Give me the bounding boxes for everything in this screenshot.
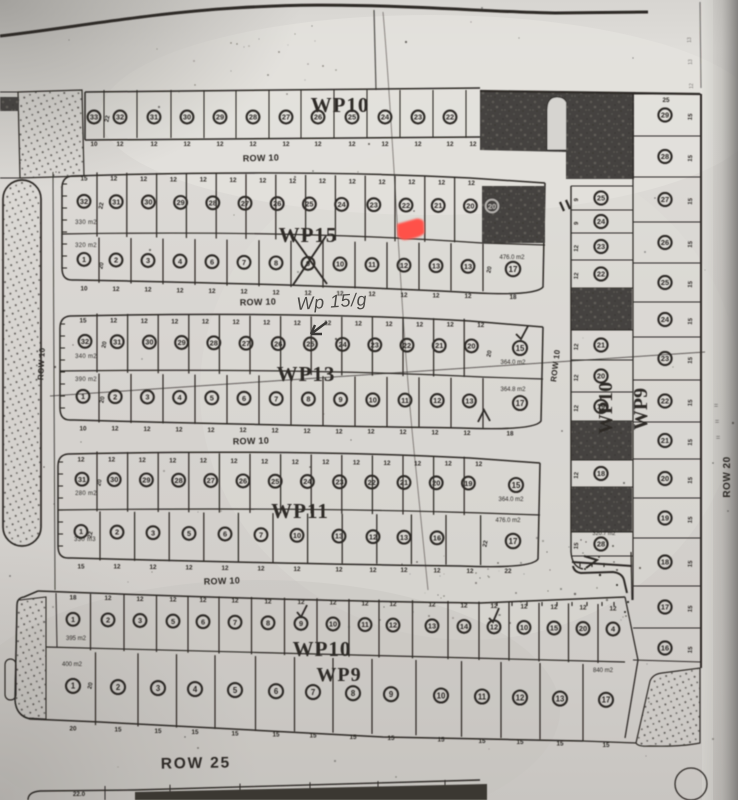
- svg-text:27: 27: [661, 195, 669, 204]
- svg-text:11: 11: [478, 692, 487, 701]
- svg-text:6: 6: [223, 530, 227, 539]
- svg-text:20: 20: [488, 202, 496, 211]
- svg-text:15: 15: [688, 516, 695, 524]
- svg-text:13: 13: [335, 532, 343, 541]
- svg-text:28: 28: [597, 540, 605, 549]
- svg-text:18: 18: [506, 430, 514, 437]
- svg-text:12: 12: [183, 141, 191, 148]
- svg-text:15: 15: [77, 563, 85, 570]
- svg-text:2: 2: [115, 528, 119, 537]
- svg-text:12: 12: [144, 287, 152, 294]
- svg-text:=: =: [714, 403, 718, 410]
- svg-text:21: 21: [400, 478, 408, 487]
- svg-text:33: 33: [90, 113, 98, 122]
- svg-text:6: 6: [274, 687, 279, 696]
- svg-text:=: =: [716, 435, 720, 442]
- svg-text:15: 15: [516, 739, 524, 746]
- svg-text:17: 17: [509, 265, 518, 274]
- svg-text:2: 2: [113, 392, 117, 401]
- svg-text:22.0: 22.0: [73, 791, 86, 798]
- svg-text:12: 12: [477, 322, 485, 329]
- svg-text:364.0 m2: 364.0 m2: [498, 497, 524, 503]
- svg-text:12: 12: [292, 459, 300, 466]
- svg-text:320 m2: 320 m2: [75, 243, 97, 249]
- svg-text:12: 12: [319, 178, 327, 185]
- svg-text:20: 20: [661, 474, 669, 483]
- svg-text:12: 12: [490, 623, 498, 632]
- svg-text:5: 5: [187, 529, 191, 538]
- svg-text:13: 13: [428, 621, 436, 630]
- svg-text:12: 12: [199, 597, 207, 604]
- svg-text:15: 15: [688, 197, 695, 205]
- svg-text:12: 12: [116, 141, 124, 148]
- svg-text:12: 12: [466, 568, 474, 575]
- svg-text:12: 12: [689, 83, 695, 89]
- svg-text:12: 12: [368, 291, 376, 298]
- svg-text:18: 18: [597, 469, 605, 478]
- svg-text:330 m2: 330 m2: [75, 220, 97, 226]
- svg-text:12: 12: [136, 596, 144, 603]
- svg-text:23: 23: [370, 200, 378, 209]
- svg-text:12: 12: [369, 567, 377, 574]
- svg-text:12: 12: [261, 458, 269, 465]
- svg-text:21: 21: [435, 341, 443, 350]
- svg-text:29: 29: [176, 198, 184, 207]
- svg-text:17: 17: [509, 537, 518, 546]
- svg-text:12: 12: [574, 272, 581, 280]
- svg-text:15: 15: [272, 732, 280, 739]
- svg-text:23: 23: [335, 478, 343, 487]
- svg-text:12: 12: [141, 318, 149, 325]
- svg-text:26: 26: [661, 238, 669, 247]
- svg-text:12: 12: [348, 141, 356, 148]
- svg-text:29: 29: [142, 476, 150, 485]
- svg-text:13: 13: [465, 397, 473, 406]
- svg-text:22: 22: [504, 568, 512, 575]
- svg-text:ROW 10: ROW 10: [243, 153, 280, 164]
- svg-text:20: 20: [597, 372, 605, 381]
- svg-text:12: 12: [574, 244, 581, 252]
- svg-text:30: 30: [145, 338, 153, 347]
- svg-text:12: 12: [335, 428, 343, 435]
- svg-text:12: 12: [468, 180, 476, 187]
- svg-text:29: 29: [661, 111, 669, 120]
- svg-text:12: 12: [169, 596, 177, 603]
- svg-text:15: 15: [478, 738, 486, 745]
- svg-text:12: 12: [149, 564, 157, 571]
- svg-text:15: 15: [688, 646, 695, 654]
- svg-text:12: 12: [139, 457, 147, 464]
- svg-text:12: 12: [216, 141, 224, 148]
- svg-text:3: 3: [156, 684, 161, 693]
- svg-text:12: 12: [385, 321, 393, 328]
- svg-text:12: 12: [110, 318, 118, 325]
- svg-text:15: 15: [154, 728, 162, 735]
- svg-text:15: 15: [688, 560, 695, 568]
- svg-text:12: 12: [432, 292, 440, 299]
- svg-text:WP9: WP9: [630, 388, 652, 430]
- svg-text:12: 12: [381, 141, 389, 148]
- svg-text:280 m2: 280 m2: [75, 491, 97, 497]
- svg-text:10: 10: [293, 531, 301, 540]
- svg-text:12: 12: [400, 261, 408, 270]
- svg-text:10: 10: [520, 623, 528, 632]
- svg-text:32: 32: [81, 337, 89, 346]
- svg-text:12: 12: [240, 289, 248, 296]
- svg-text:12: 12: [433, 396, 441, 405]
- svg-text:12: 12: [221, 565, 229, 572]
- svg-text:2: 2: [106, 616, 110, 625]
- svg-text:320.7 m2: 320.7 m2: [593, 531, 616, 537]
- svg-text:18: 18: [661, 558, 669, 567]
- svg-text:1: 1: [82, 255, 86, 264]
- svg-text:4: 4: [193, 685, 198, 694]
- svg-text:24: 24: [338, 340, 347, 349]
- svg-text:12: 12: [150, 141, 158, 148]
- svg-text:22: 22: [661, 397, 669, 406]
- svg-text:16: 16: [433, 534, 441, 543]
- svg-text:27: 27: [242, 339, 250, 348]
- svg-text:17: 17: [602, 696, 611, 705]
- svg-text:12: 12: [207, 427, 215, 434]
- svg-text:25: 25: [306, 340, 314, 349]
- svg-text:21: 21: [661, 436, 669, 445]
- svg-text:27: 27: [282, 113, 290, 122]
- svg-text:13: 13: [432, 261, 440, 270]
- svg-text:12: 12: [257, 565, 265, 572]
- svg-text:10: 10: [329, 620, 337, 629]
- svg-text:13: 13: [556, 694, 565, 703]
- svg-text:13: 13: [464, 262, 472, 271]
- svg-text:24: 24: [303, 477, 312, 486]
- svg-text:8: 8: [274, 259, 278, 268]
- svg-text:15: 15: [191, 729, 199, 736]
- svg-text:7: 7: [274, 394, 278, 403]
- svg-text:20: 20: [432, 478, 440, 487]
- svg-text:12: 12: [208, 288, 216, 295]
- svg-text:24: 24: [597, 217, 606, 226]
- svg-text:22: 22: [597, 270, 605, 279]
- svg-text:12: 12: [229, 177, 237, 184]
- svg-text:12: 12: [77, 456, 85, 463]
- svg-text:12: 12: [389, 601, 397, 608]
- svg-text:23: 23: [597, 242, 605, 251]
- svg-text:21: 21: [434, 201, 442, 210]
- svg-text:15: 15: [688, 113, 695, 121]
- svg-text:30: 30: [144, 198, 152, 207]
- svg-text:6: 6: [210, 257, 214, 266]
- svg-text:15: 15: [688, 438, 695, 446]
- svg-text:30: 30: [183, 113, 191, 122]
- svg-text:31: 31: [113, 337, 121, 346]
- svg-text:15: 15: [688, 476, 695, 484]
- svg-text:WP10: WP10: [595, 382, 617, 434]
- svg-text:WP15: WP15: [279, 223, 338, 247]
- svg-text:15: 15: [688, 317, 695, 325]
- svg-text:15: 15: [512, 481, 521, 490]
- svg-text:12: 12: [408, 179, 416, 186]
- svg-text:31: 31: [150, 113, 158, 122]
- svg-text:476.0 m2: 476.0 m2: [495, 518, 521, 524]
- svg-text:6: 6: [201, 617, 205, 626]
- svg-text:15: 15: [80, 175, 88, 182]
- svg-text:12: 12: [574, 471, 581, 479]
- svg-text:27: 27: [241, 199, 249, 208]
- svg-text:12: 12: [389, 621, 397, 630]
- svg-text:12: 12: [289, 178, 297, 185]
- svg-text:2: 2: [116, 683, 121, 692]
- svg-text:WP11: WP11: [271, 499, 329, 523]
- svg-text:24: 24: [337, 200, 346, 209]
- svg-text:15: 15: [574, 542, 581, 550]
- svg-text:15: 15: [688, 399, 695, 407]
- svg-text:ROW 10: ROW 10: [240, 297, 277, 308]
- svg-text:15: 15: [550, 624, 558, 633]
- svg-text:12: 12: [329, 600, 337, 607]
- svg-text:22: 22: [446, 113, 454, 122]
- svg-text:26: 26: [274, 339, 282, 348]
- svg-text:29: 29: [216, 113, 224, 122]
- svg-text:31: 31: [78, 475, 86, 484]
- svg-text:12: 12: [140, 176, 148, 183]
- svg-text:24: 24: [381, 113, 390, 122]
- svg-text:15: 15: [556, 740, 564, 747]
- svg-text:23: 23: [371, 340, 379, 349]
- svg-text:12: 12: [355, 321, 363, 328]
- svg-text:7: 7: [242, 258, 246, 267]
- svg-text:12: 12: [314, 141, 322, 148]
- svg-text:3: 3: [145, 393, 149, 402]
- svg-text:15: 15: [688, 605, 695, 613]
- svg-text:15: 15: [114, 727, 122, 734]
- svg-text:12: 12: [378, 179, 386, 186]
- svg-text:12: 12: [200, 458, 208, 465]
- svg-text:12: 12: [263, 319, 271, 326]
- svg-text:ROW 10: ROW 10: [36, 347, 47, 380]
- svg-text:22: 22: [368, 478, 376, 487]
- svg-text:12: 12: [475, 461, 483, 468]
- svg-text:390 m2: 390 m2: [75, 377, 97, 383]
- svg-text:12: 12: [433, 568, 441, 575]
- svg-text:12: 12: [171, 318, 179, 325]
- svg-text:12: 12: [574, 374, 581, 382]
- svg-text:12: 12: [446, 141, 454, 148]
- svg-text:364.8 m2: 364.8 m2: [500, 387, 526, 393]
- svg-text:5: 5: [210, 394, 214, 403]
- svg-text:12: 12: [579, 605, 587, 612]
- svg-text:28: 28: [210, 339, 218, 348]
- svg-text:WP10: WP10: [293, 637, 352, 661]
- svg-text:12: 12: [431, 430, 439, 437]
- svg-text:20: 20: [467, 342, 475, 351]
- svg-text:10: 10: [336, 260, 344, 269]
- svg-text:12: 12: [460, 602, 468, 609]
- svg-text:2: 2: [114, 256, 118, 265]
- svg-text:12: 12: [185, 565, 193, 572]
- svg-text:15: 15: [688, 154, 695, 162]
- svg-text:1: 1: [79, 527, 83, 536]
- svg-text:15: 15: [387, 735, 395, 742]
- svg-text:25: 25: [661, 278, 669, 287]
- svg-text:7: 7: [233, 618, 237, 627]
- svg-text:10: 10: [437, 691, 446, 700]
- svg-text:10: 10: [90, 141, 98, 148]
- svg-text:17: 17: [516, 399, 525, 408]
- svg-text:12: 12: [399, 429, 407, 436]
- svg-text:=: =: [715, 419, 719, 426]
- svg-text:12: 12: [574, 404, 581, 412]
- svg-text:5: 5: [171, 617, 175, 626]
- svg-text:3: 3: [151, 528, 155, 537]
- svg-text:15: 15: [688, 240, 695, 248]
- svg-text:3: 3: [138, 616, 142, 625]
- svg-text:1: 1: [71, 682, 76, 691]
- svg-text:12: 12: [111, 426, 119, 433]
- svg-text:9: 9: [389, 690, 394, 699]
- svg-text:ROW 20: ROW 20: [722, 456, 733, 497]
- svg-text:10: 10: [369, 395, 377, 404]
- svg-text:12: 12: [369, 532, 377, 541]
- svg-text:25: 25: [597, 194, 605, 203]
- svg-text:12: 12: [110, 176, 118, 183]
- svg-text:476.0 m2: 476.0 m2: [499, 255, 525, 261]
- svg-text:12: 12: [169, 457, 177, 464]
- svg-text:12: 12: [297, 599, 305, 606]
- svg-text:9: 9: [299, 619, 303, 628]
- svg-text:WP10: WP10: [311, 93, 370, 117]
- svg-text:12: 12: [400, 567, 408, 574]
- svg-text:12: 12: [447, 322, 455, 329]
- svg-text:20: 20: [579, 624, 587, 633]
- svg-text:6: 6: [242, 394, 246, 403]
- svg-text:ROW 25: ROW 25: [161, 754, 232, 772]
- svg-text:18: 18: [69, 594, 77, 601]
- svg-text:12: 12: [259, 177, 267, 184]
- svg-text:13: 13: [687, 37, 693, 43]
- svg-text:12: 12: [230, 458, 238, 465]
- svg-text:32: 32: [80, 197, 88, 206]
- svg-text:14: 14: [460, 622, 469, 631]
- svg-text:WP13: WP13: [277, 362, 336, 386]
- svg-text:12: 12: [516, 693, 525, 702]
- svg-text:12: 12: [303, 428, 311, 435]
- svg-text:8: 8: [306, 395, 310, 404]
- svg-text:15: 15: [602, 742, 610, 749]
- svg-text:12: 12: [113, 564, 121, 571]
- svg-text:19: 19: [661, 514, 669, 523]
- svg-text:8: 8: [351, 689, 356, 698]
- svg-text:11: 11: [368, 260, 376, 269]
- svg-text:28: 28: [209, 199, 217, 208]
- svg-text:12: 12: [282, 141, 290, 148]
- svg-text:12: 12: [143, 426, 151, 433]
- svg-text:15: 15: [516, 344, 525, 353]
- svg-text:27: 27: [207, 476, 215, 485]
- svg-text:20: 20: [69, 725, 77, 732]
- svg-text:28: 28: [661, 152, 669, 161]
- svg-text:7: 7: [311, 688, 315, 697]
- svg-text:12: 12: [445, 461, 453, 468]
- svg-text:395 m2: 395 m2: [66, 636, 87, 642]
- svg-text:13: 13: [400, 533, 408, 542]
- svg-text:19: 19: [464, 479, 472, 488]
- svg-text:12: 12: [294, 320, 302, 327]
- svg-text:12: 12: [108, 457, 116, 464]
- svg-text:15: 15: [349, 734, 357, 741]
- svg-text:15: 15: [437, 737, 445, 744]
- svg-text:400 m2: 400 m2: [62, 662, 83, 668]
- svg-text:32: 32: [116, 113, 124, 122]
- svg-text:12: 12: [271, 428, 279, 435]
- svg-text:15: 15: [79, 317, 87, 324]
- svg-text:5: 5: [233, 686, 238, 695]
- svg-text:ROW 10: ROW 10: [204, 575, 241, 586]
- svg-text:15: 15: [688, 280, 695, 288]
- svg-text:21: 21: [597, 341, 605, 350]
- svg-text:12: 12: [349, 178, 357, 185]
- svg-text:23: 23: [414, 113, 422, 122]
- svg-text:12: 12: [353, 460, 361, 467]
- svg-text:25: 25: [305, 200, 313, 209]
- svg-text:12: 12: [264, 598, 272, 605]
- svg-text:12: 12: [383, 460, 391, 467]
- svg-text:12: 12: [272, 289, 280, 296]
- svg-text:28: 28: [174, 476, 182, 485]
- svg-text:13: 13: [688, 59, 694, 65]
- svg-text:340 m2: 340 m2: [75, 354, 97, 360]
- svg-text:11: 11: [401, 396, 409, 405]
- svg-text:29: 29: [177, 338, 185, 347]
- svg-text:10: 10: [80, 285, 88, 292]
- svg-text:12: 12: [416, 321, 424, 328]
- svg-text:15: 15: [309, 733, 317, 740]
- svg-text:17: 17: [661, 603, 669, 612]
- svg-text:840 m2: 840 m2: [593, 668, 614, 674]
- svg-text:16: 16: [661, 644, 669, 653]
- svg-text:31: 31: [112, 197, 120, 206]
- svg-text:23: 23: [661, 354, 669, 363]
- svg-text:26: 26: [239, 477, 247, 486]
- svg-text:22: 22: [402, 201, 410, 210]
- svg-text:20: 20: [466, 202, 474, 211]
- svg-text:1: 1: [71, 615, 75, 624]
- svg-text:12: 12: [202, 319, 210, 326]
- svg-text:12: 12: [361, 600, 369, 607]
- svg-text:8: 8: [266, 619, 270, 628]
- svg-text:12: 12: [232, 319, 240, 326]
- svg-text:12: 12: [438, 180, 446, 187]
- svg-text:12: 12: [335, 566, 343, 573]
- svg-text:22: 22: [403, 341, 411, 350]
- svg-text:7: 7: [259, 530, 263, 539]
- svg-text:12: 12: [231, 598, 239, 605]
- svg-text:12: 12: [428, 602, 436, 609]
- svg-text:12: 12: [609, 605, 617, 612]
- svg-text:26: 26: [273, 199, 281, 208]
- svg-text:25: 25: [271, 477, 279, 486]
- svg-text:12: 12: [414, 141, 422, 148]
- svg-text:12: 12: [104, 595, 112, 602]
- svg-text:12: 12: [293, 566, 301, 573]
- svg-text:ROW 10: ROW 10: [233, 436, 270, 447]
- svg-text:12: 12: [463, 430, 471, 437]
- svg-text:12: 12: [175, 426, 183, 433]
- svg-text:11: 11: [361, 620, 369, 629]
- svg-text:18: 18: [509, 294, 517, 301]
- svg-text:12: 12: [170, 176, 178, 183]
- svg-text:12: 12: [464, 293, 472, 300]
- svg-text:12: 12: [322, 459, 330, 466]
